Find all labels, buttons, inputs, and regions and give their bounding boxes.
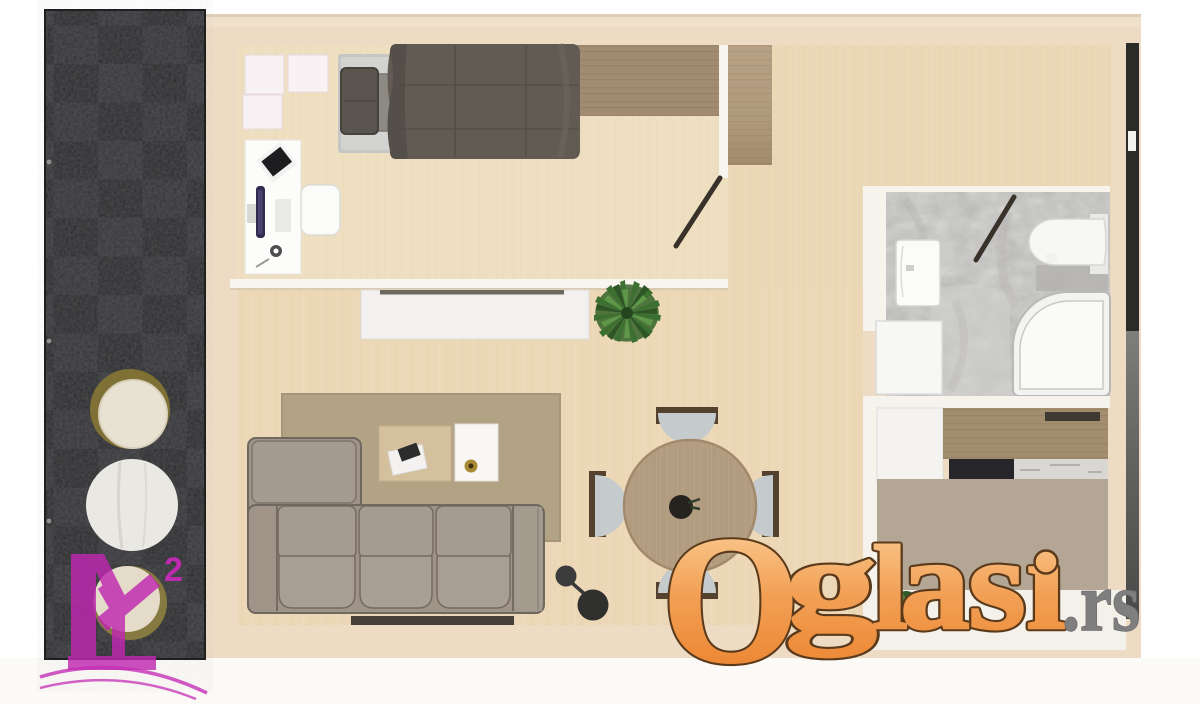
svg-text:a: a xyxy=(900,510,970,657)
svg-text:O: O xyxy=(662,500,800,701)
svg-text:ı: ı xyxy=(1026,510,1066,657)
svg-text:.rs: .rs xyxy=(1062,556,1140,649)
svg-text:2: 2 xyxy=(164,551,183,589)
svg-text:s: s xyxy=(968,510,1026,657)
svg-text:g: g xyxy=(785,510,877,657)
